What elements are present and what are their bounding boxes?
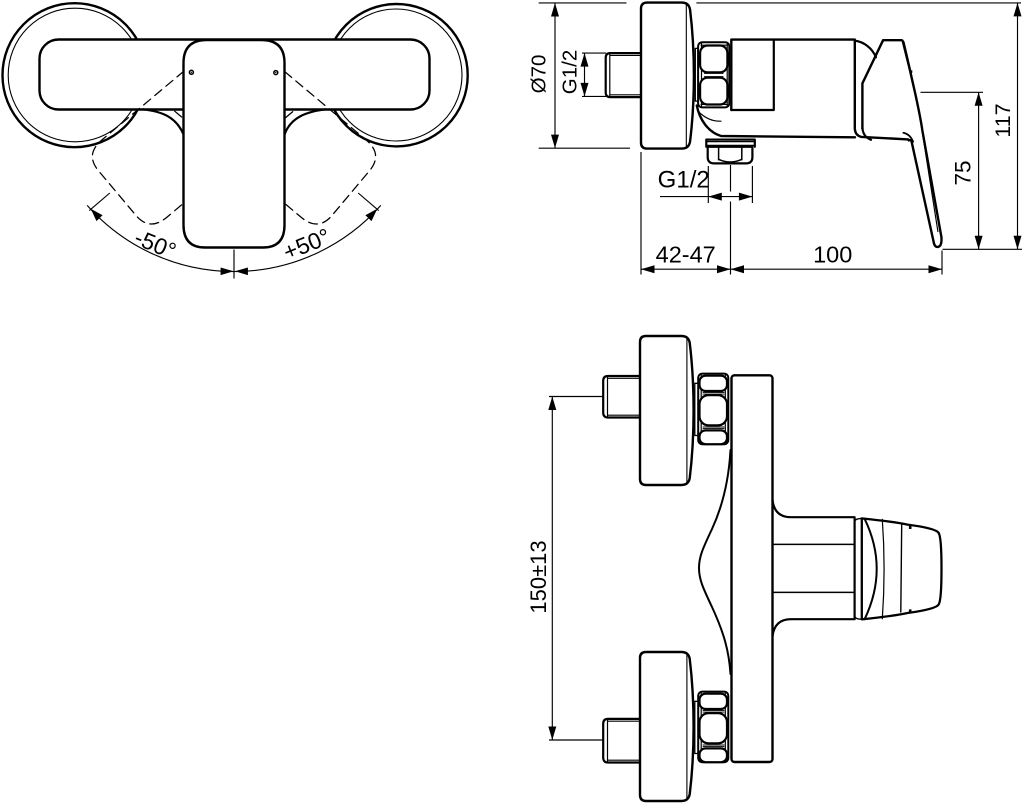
svg-text:G1/2: G1/2 [658,167,710,194]
svg-text:150±13: 150±13 [526,540,551,613]
svg-text:G1/2: G1/2 [559,50,582,94]
svg-text:75: 75 [950,160,975,185]
svg-text:42-47: 42-47 [656,242,716,268]
svg-text:117: 117 [991,103,1015,137]
svg-text:Ø70: Ø70 [528,55,551,94]
svg-text:100: 100 [813,242,852,268]
